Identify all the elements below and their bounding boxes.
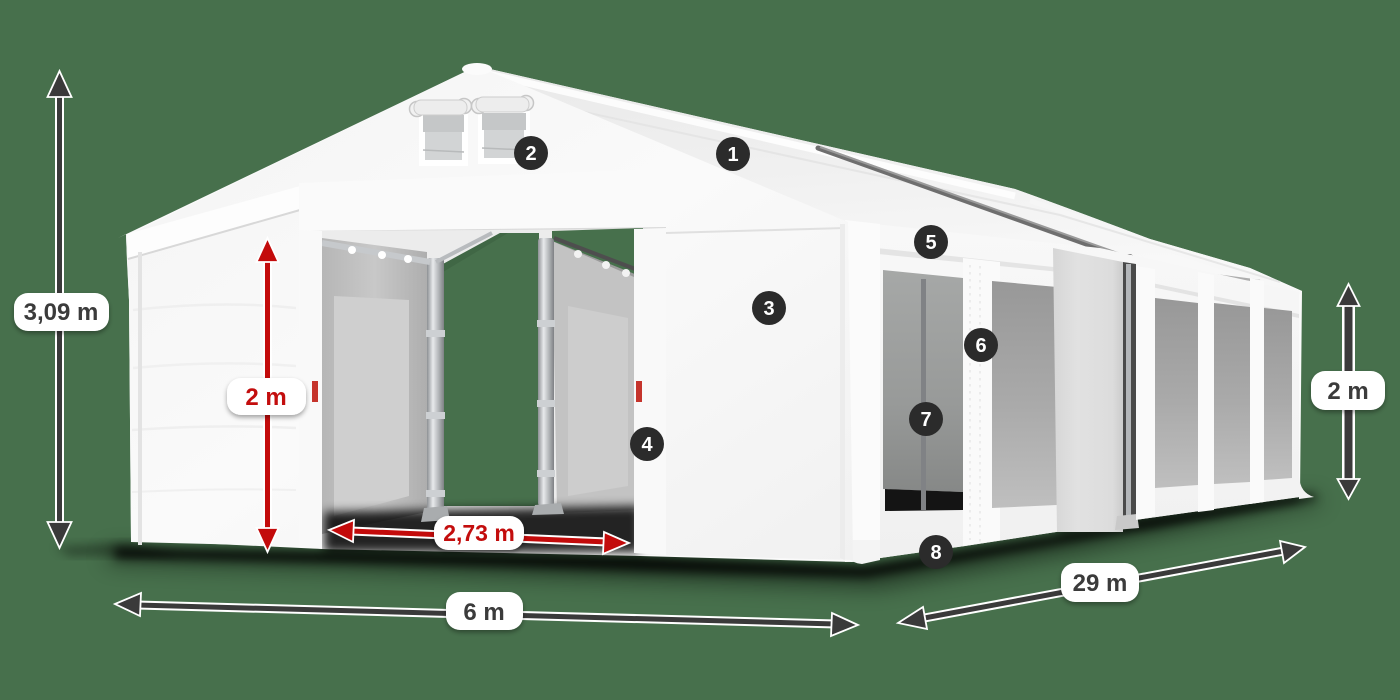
svg-text:3: 3 bbox=[763, 298, 774, 320]
svg-text:2: 2 bbox=[525, 143, 536, 165]
svg-text:4: 4 bbox=[641, 434, 653, 456]
svg-text:7: 7 bbox=[920, 409, 931, 431]
svg-text:2 m: 2 m bbox=[1327, 378, 1368, 405]
svg-text:6 m: 6 m bbox=[463, 599, 504, 626]
svg-text:5: 5 bbox=[925, 232, 936, 254]
svg-text:29 m: 29 m bbox=[1073, 570, 1128, 597]
svg-text:2,73 m: 2,73 m bbox=[443, 520, 515, 546]
svg-text:3,09 m: 3,09 m bbox=[24, 299, 99, 326]
svg-text:1: 1 bbox=[727, 144, 738, 166]
svg-text:2 m: 2 m bbox=[245, 384, 286, 411]
svg-text:6: 6 bbox=[975, 335, 986, 357]
svg-text:8: 8 bbox=[930, 542, 941, 564]
